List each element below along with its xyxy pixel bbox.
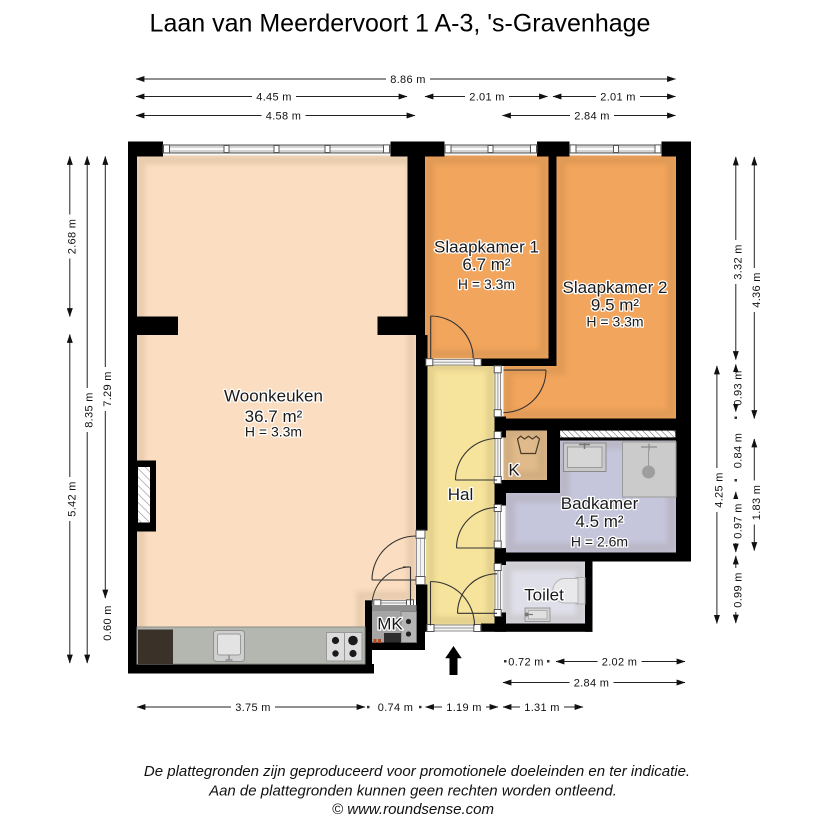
svg-text:0.74 m: 0.74 m [378, 702, 413, 714]
svg-text:1.31 m: 1.31 m [524, 702, 559, 714]
svg-text:1.19 m: 1.19 m [446, 702, 481, 714]
svg-text:8.35 m: 8.35 m [84, 392, 96, 427]
svg-text:5.42 m: 5.42 m [66, 481, 78, 516]
svg-text:Slaapkamer 1: Slaapkamer 1 [434, 238, 539, 257]
svg-text:6.7 m²: 6.7 m² [462, 255, 511, 274]
svg-text:0.72 m: 0.72 m [508, 657, 543, 669]
svg-text:Badkamer: Badkamer [561, 494, 639, 513]
svg-text:9.5 m²: 9.5 m² [591, 296, 640, 315]
svg-text:2.02 m: 2.02 m [602, 657, 637, 669]
svg-text:K: K [508, 461, 520, 480]
svg-text:4.58 m: 4.58 m [266, 111, 301, 123]
svg-text:H = 3.3m: H = 3.3m [245, 424, 302, 440]
svg-text:Woonkeuken: Woonkeuken [224, 387, 323, 406]
svg-text:2.84 m: 2.84 m [574, 111, 609, 123]
svg-text:2.68 m: 2.68 m [66, 219, 78, 254]
svg-text:0.97 m: 0.97 m [732, 503, 744, 538]
svg-text:0.84 m: 0.84 m [732, 433, 744, 468]
svg-text:0.93 m: 0.93 m [732, 370, 744, 405]
svg-text:3.75 m: 3.75 m [235, 702, 270, 714]
svg-text:1.83 m: 1.83 m [751, 485, 763, 520]
svg-text:2.01 m: 2.01 m [600, 92, 635, 104]
svg-text:4.45 m: 4.45 m [256, 92, 291, 104]
svg-text:2.01 m: 2.01 m [469, 92, 504, 104]
svg-text:Aan de plattegronden kunnen ge: Aan de plattegronden kunnen geen rechten… [208, 783, 617, 800]
svg-text:3.32 m: 3.32 m [732, 244, 744, 279]
svg-text:MK: MK [377, 615, 403, 634]
svg-text:4.25 m: 4.25 m [713, 472, 725, 507]
svg-text:De plattegronden zijn geproduc: De plattegronden zijn geproduceerd voor … [144, 763, 690, 780]
svg-text:0.99 m: 0.99 m [732, 572, 744, 607]
svg-text:Laan van Meerdervoort 1 A-3, ': Laan van Meerdervoort 1 A-3, 's-Gravenha… [150, 10, 651, 38]
svg-text:8.86 m: 8.86 m [390, 74, 425, 86]
svg-text:4.5 m²: 4.5 m² [575, 512, 624, 531]
svg-text:Slaapkamer 2: Slaapkamer 2 [563, 278, 668, 297]
svg-text:H = 3.3m: H = 3.3m [458, 276, 515, 292]
svg-text:H = 2.6m: H = 2.6m [571, 534, 628, 550]
svg-text:H = 3.3m: H = 3.3m [586, 314, 643, 330]
svg-text:Hal: Hal [448, 485, 474, 504]
svg-text:© www.roundsense.com: © www.roundsense.com [332, 801, 494, 818]
svg-text:7.29 m: 7.29 m [102, 371, 114, 406]
svg-text:0.60 m: 0.60 m [102, 605, 114, 640]
svg-text:4.36 m: 4.36 m [751, 272, 763, 307]
svg-text:Toilet: Toilet [524, 586, 564, 605]
svg-text:2.84 m: 2.84 m [574, 678, 609, 690]
